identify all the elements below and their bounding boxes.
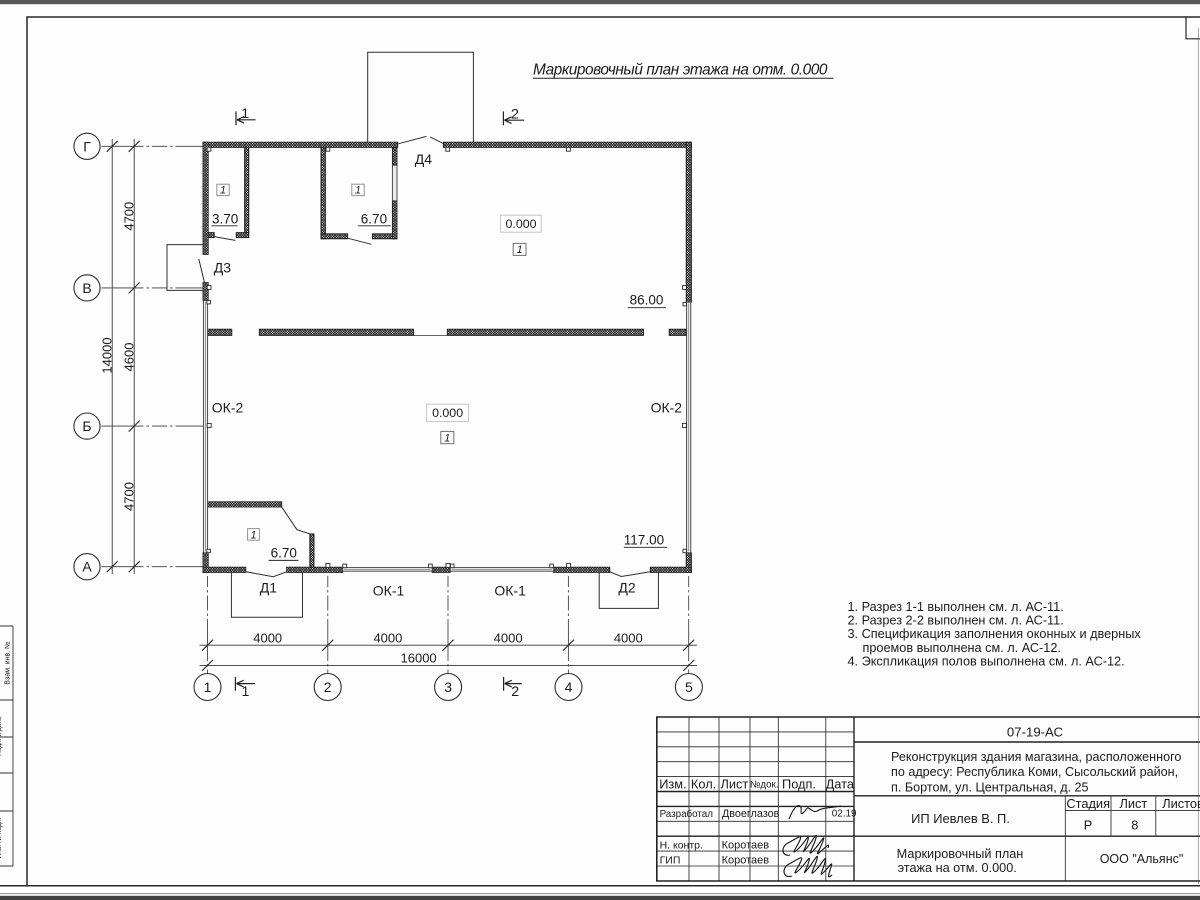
svg-text:Подп.: Подп. xyxy=(782,776,816,791)
svg-text:2. Разрез 2-2 выполнен см. л.: 2. Разрез 2-2 выполнен см. л. АС-11. xyxy=(848,614,1064,628)
svg-text:Взам. инв. №: Взам. инв. № xyxy=(5,641,12,684)
svg-text:3.70: 3.70 xyxy=(212,211,238,226)
svg-text:этажа на отм. 0.000.: этажа на отм. 0.000. xyxy=(898,861,1017,875)
svg-text:0.000: 0.000 xyxy=(505,217,536,231)
svg-text:ОК-2: ОК-2 xyxy=(651,400,683,416)
svg-text:Д4: Д4 xyxy=(415,151,432,167)
svg-text:В: В xyxy=(82,280,91,296)
svg-text:4600: 4600 xyxy=(121,343,136,372)
svg-text:Лист: Лист xyxy=(720,776,748,791)
svg-text:1: 1 xyxy=(444,433,450,445)
svg-text:4000: 4000 xyxy=(373,631,402,646)
svg-text:Разработал: Разработал xyxy=(660,809,714,820)
svg-text:4700: 4700 xyxy=(121,482,136,511)
svg-text:Коротаев: Коротаев xyxy=(722,840,770,852)
svg-text:1: 1 xyxy=(517,244,523,256)
svg-text:3. Спецификация заполнения око: 3. Спецификация заполнения оконных и две… xyxy=(848,627,1142,641)
svg-text:Инв. № подл.: Инв. № подл. xyxy=(0,817,3,858)
svg-text:1: 1 xyxy=(250,529,256,541)
svg-text:117.00: 117.00 xyxy=(624,532,664,547)
svg-text:8: 8 xyxy=(1131,818,1138,833)
svg-text:86.00: 86.00 xyxy=(630,293,664,308)
svg-text:1: 1 xyxy=(241,684,249,700)
svg-text:ОК-1: ОК-1 xyxy=(494,582,526,598)
svg-text:Стадия: Стадия xyxy=(1066,796,1110,811)
svg-text:14000: 14000 xyxy=(100,337,115,373)
svg-text:Кол.: Кол. xyxy=(691,776,716,791)
svg-text:№док.: №док. xyxy=(750,779,779,790)
svg-text:по адресу: Республика Коми, Сы: по адресу: Республика Коми, Сысольский р… xyxy=(891,765,1178,779)
svg-text:02.19: 02.19 xyxy=(832,809,857,820)
svg-text:2: 2 xyxy=(324,679,332,695)
svg-text:16000: 16000 xyxy=(401,650,437,665)
svg-text:Дата: Дата xyxy=(826,776,855,791)
svg-text:Р: Р xyxy=(1084,818,1093,833)
svg-text:Листов: Листов xyxy=(1162,796,1200,811)
svg-text:6.70: 6.70 xyxy=(271,546,297,561)
svg-text:0.000: 0.000 xyxy=(432,406,463,420)
svg-text:07-19-АС: 07-19-АС xyxy=(1007,725,1064,740)
svg-text:1. Разрез 1-1 выполнен см. л.: 1. Разрез 1-1 выполнен см. л. АС-11. xyxy=(848,600,1064,614)
svg-text:ГИП: ГИП xyxy=(660,854,681,866)
svg-text:Д3: Д3 xyxy=(214,260,231,276)
svg-text:2: 2 xyxy=(511,107,519,123)
svg-text:Реконструкция здания магазина,: Реконструкция здания магазина, расположе… xyxy=(891,750,1181,764)
svg-text:ОК-2: ОК-2 xyxy=(212,400,244,416)
svg-text:Лист: Лист xyxy=(1119,796,1147,811)
svg-text:4000: 4000 xyxy=(494,631,523,646)
svg-text:4: 4 xyxy=(565,679,573,695)
svg-text:ОК-1: ОК-1 xyxy=(373,582,405,598)
svg-text:1: 1 xyxy=(355,185,361,197)
svg-text:4000: 4000 xyxy=(614,631,643,646)
svg-text:Н. контр.: Н. контр. xyxy=(660,839,703,851)
svg-text:Г: Г xyxy=(83,138,91,154)
svg-text:1: 1 xyxy=(204,679,212,695)
svg-text:Коротаев: Коротаев xyxy=(722,855,770,867)
svg-text:Изм.: Изм. xyxy=(659,776,686,791)
svg-text:ИП Иевлев В. П.: ИП Иевлев В. П. xyxy=(911,811,1010,826)
svg-text:2: 2 xyxy=(511,684,519,700)
svg-text:5: 5 xyxy=(685,679,693,695)
svg-text:1: 1 xyxy=(241,106,249,122)
svg-text:4700: 4700 xyxy=(121,202,136,231)
svg-text:4. Экспликация полов выполнена: 4. Экспликация полов выполнена см. л. АС… xyxy=(848,655,1125,669)
svg-text:Б: Б xyxy=(82,418,91,434)
svg-text:п. Бортом, ул. Центральная, д.: п. Бортом, ул. Центральная, д. 25 xyxy=(891,780,1089,794)
svg-text:Д2: Д2 xyxy=(618,579,635,595)
svg-text:1: 1 xyxy=(220,185,226,197)
svg-text:Двоеглазов: Двоеглазов xyxy=(722,808,780,820)
svg-text:Подп. и дата: Подп. и дата xyxy=(0,717,3,756)
svg-text:Маркировочный план: Маркировочный план xyxy=(897,847,1024,861)
svg-text:проемов выполнена см. л. АС-12: проемов выполнена см. л. АС-12. xyxy=(863,641,1061,655)
svg-text:А: А xyxy=(82,559,92,575)
svg-text:Д1: Д1 xyxy=(260,579,277,595)
svg-text:4000: 4000 xyxy=(253,631,282,646)
svg-text:6.70: 6.70 xyxy=(361,211,387,226)
svg-text:ООО "Альянс": ООО "Альянс" xyxy=(1100,852,1184,866)
svg-text:Маркировочный план этажа на от: Маркировочный план этажа на отм. 0.000 xyxy=(533,62,828,79)
svg-text:3: 3 xyxy=(444,679,452,695)
